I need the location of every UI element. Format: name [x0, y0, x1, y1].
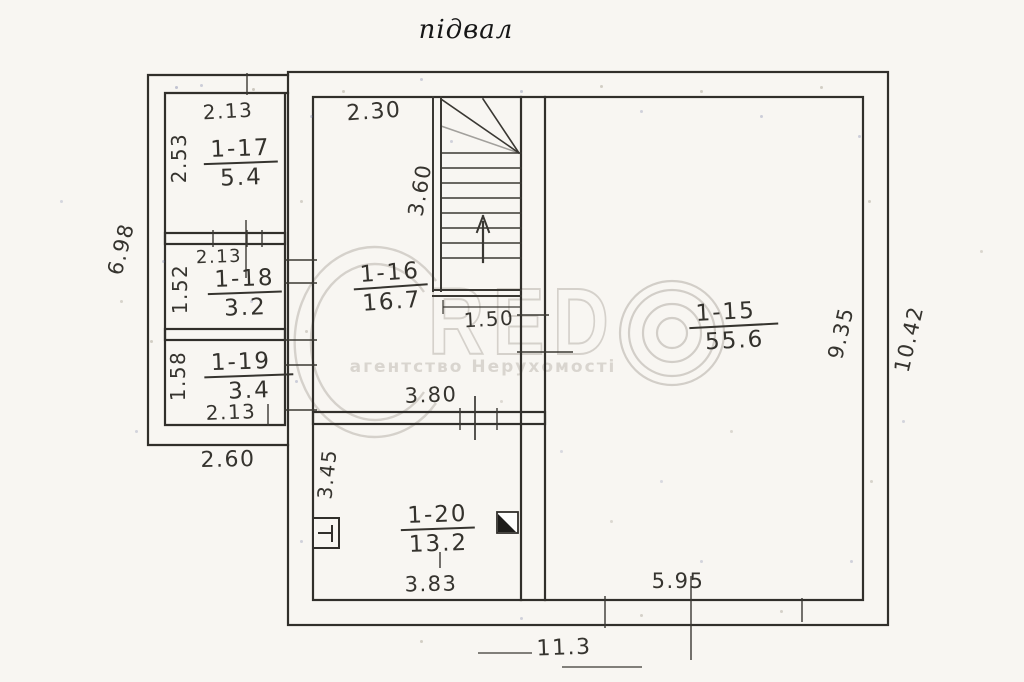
dim-stair-width: 1.50: [463, 306, 515, 333]
room-label-1-18: 1-18 3.2: [207, 265, 283, 326]
room-label-1-15: 1-15 55.6: [688, 297, 780, 360]
dim-main-bottom: 11.3: [536, 635, 592, 662]
room-label-1-19: 1-19 3.4: [203, 347, 294, 408]
room-number-1-20: 1-20: [400, 501, 475, 532]
wall-116-120: [313, 412, 545, 424]
room-area-1-16: 16.7: [354, 286, 430, 321]
wall-117-118: [165, 233, 285, 244]
stair-winder-faint: [441, 126, 519, 153]
room-number-1-18: 1-18: [207, 265, 282, 296]
scan-speckles: [0, 0, 3, 3]
room-area-1-18: 3.2: [208, 293, 283, 325]
dim-118-top: 2.13: [196, 246, 243, 269]
room-label-1-20: 1-20 13.2: [400, 501, 476, 562]
room-area-1-20: 13.2: [401, 529, 476, 561]
wall-ticks: [213, 73, 802, 667]
dim-120-top: 3.80: [404, 382, 458, 408]
wall-118-119: [165, 329, 285, 340]
dim-120-bottom: 3.83: [404, 572, 457, 597]
stair-treads: [441, 153, 521, 258]
staircase: [433, 97, 521, 296]
room-number-1-19: 1-19: [203, 347, 293, 379]
room-label-1-16: 1-16 16.7: [352, 257, 430, 320]
stair-winders: [441, 99, 519, 153]
room-area-1-15: 55.6: [689, 325, 780, 360]
wall-main-inner: [313, 97, 863, 600]
dim-116-top: 2.30: [346, 98, 403, 127]
floor-plan-drawing: [0, 0, 1024, 682]
room-label-1-17: 1-17 5.4: [203, 135, 279, 196]
fixture-symbol-icon: [313, 518, 339, 548]
wall-main-outer: [288, 72, 888, 625]
dim-119-left: 1.58: [166, 351, 190, 402]
dim-118-left: 1.52: [168, 264, 192, 315]
stair-landing-edge: [433, 290, 521, 296]
stair-left-wall: [433, 97, 441, 291]
scanned-floor-plan-page: RED агентство Нерухомості: [0, 0, 1024, 682]
dim-115-bottom: 5.95: [652, 569, 705, 593]
dim-annex-bottom: 2.60: [200, 447, 255, 473]
room-number-1-17: 1-17: [203, 135, 278, 166]
room-area-1-17: 5.4: [204, 163, 279, 195]
wall-corridor-115: [521, 97, 545, 600]
flue-symbol-icon: [497, 512, 518, 533]
stair-direction-arrow-icon: [477, 216, 489, 262]
dim-117-top: 2.13: [202, 98, 254, 125]
room-area-1-19: 3.4: [204, 376, 294, 409]
dim-117-left: 2.53: [167, 133, 191, 184]
page-title: підвал: [419, 15, 514, 45]
